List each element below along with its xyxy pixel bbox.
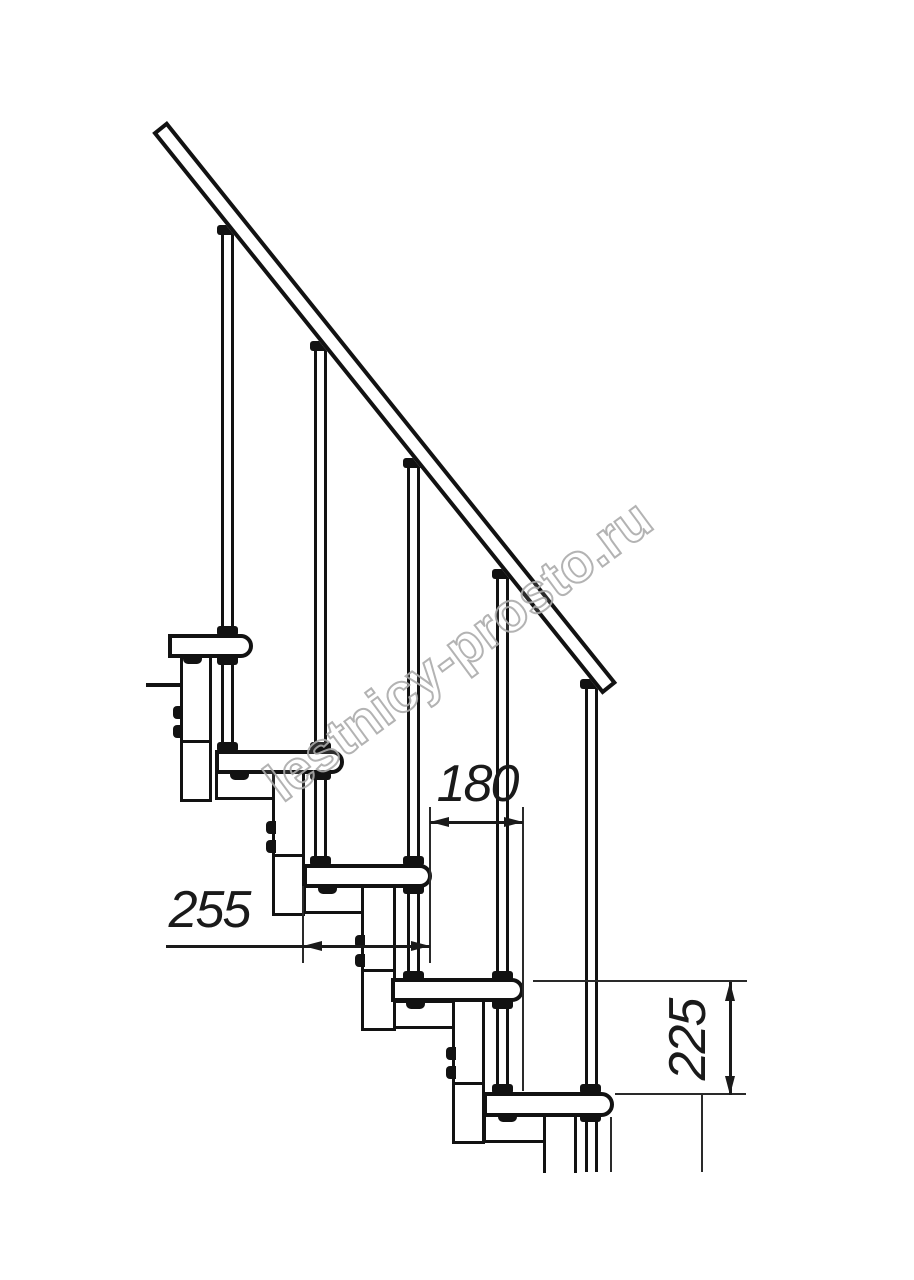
under-tread-collar: [580, 1114, 601, 1122]
staircase-drawing: 180 255 225 lestnicy-prosto.ru: [0, 0, 914, 1280]
tread-fixing-nub: [498, 1114, 517, 1122]
baluster-base-collar: [492, 971, 513, 981]
under-tread-collar: [492, 1001, 513, 1009]
wall-fixing-tick: [146, 683, 182, 687]
baluster-base-collar: [492, 1084, 513, 1094]
extension-line: [610, 1117, 612, 1172]
baluster-base-collar: [310, 856, 331, 866]
dimension-label-180: 180: [422, 758, 532, 810]
tread-4: [391, 978, 524, 1002]
stringer-module-tube: [361, 884, 396, 1031]
tread-fixing-nub: [230, 772, 249, 780]
bolt-tab: [266, 840, 276, 853]
extension-line: [429, 807, 431, 963]
under-tread-collar: [217, 657, 238, 665]
baluster-base-collar: [310, 742, 331, 752]
baluster-base-collar: [217, 742, 238, 752]
baluster-base-collar: [217, 626, 238, 636]
tread-fixing-nub: [183, 656, 202, 664]
stringer-module-tube: [543, 1113, 577, 1173]
dimension-arrow-left: [430, 817, 449, 827]
bolt-tab: [173, 706, 183, 719]
extension-line: [302, 886, 304, 963]
baluster-rod: [314, 344, 327, 874]
extension-line: [533, 980, 747, 982]
stringer-module-tube: [452, 999, 485, 1144]
dimension-arrow-right: [411, 941, 430, 951]
baluster-rod: [407, 461, 420, 989]
tread-fixing-nub: [318, 886, 337, 894]
bolt-tab: [173, 725, 183, 738]
tread-fixing-nub: [406, 1001, 425, 1009]
dimension-line-255: [166, 945, 430, 948]
module-joint-line: [363, 969, 394, 972]
module-joint-line: [274, 854, 303, 857]
stringer-module-tube: [272, 770, 305, 916]
dimension-label-255: 255: [149, 884, 269, 936]
baluster-rod: [496, 572, 509, 1102]
module-joint-line: [182, 740, 210, 743]
baluster-base-collar: [403, 971, 424, 981]
bolt-tab: [355, 954, 365, 967]
dimension-label-225: 225: [662, 985, 714, 1095]
stringer-module-tube: [180, 655, 212, 802]
bolt-tab: [446, 1047, 456, 1060]
under-tread-collar: [403, 886, 424, 894]
tread-3: [303, 864, 432, 888]
baluster-rod: [221, 228, 234, 760]
dimension-arrow-right: [504, 817, 523, 827]
dimension-arrow-down: [725, 1076, 735, 1095]
bolt-tab: [266, 821, 276, 834]
dimension-arrow-left: [303, 941, 322, 951]
tread-1: [168, 634, 253, 658]
module-joint-line: [454, 1082, 483, 1085]
dimension-arrow-up: [725, 982, 735, 1001]
baluster-base-collar: [403, 856, 424, 866]
tread-2: [215, 750, 344, 774]
baluster-base-collar: [580, 1084, 601, 1094]
extension-line: [522, 807, 524, 1091]
under-tread-collar: [310, 772, 331, 780]
extension-line: [701, 1094, 703, 1172]
bolt-tab: [446, 1066, 456, 1079]
